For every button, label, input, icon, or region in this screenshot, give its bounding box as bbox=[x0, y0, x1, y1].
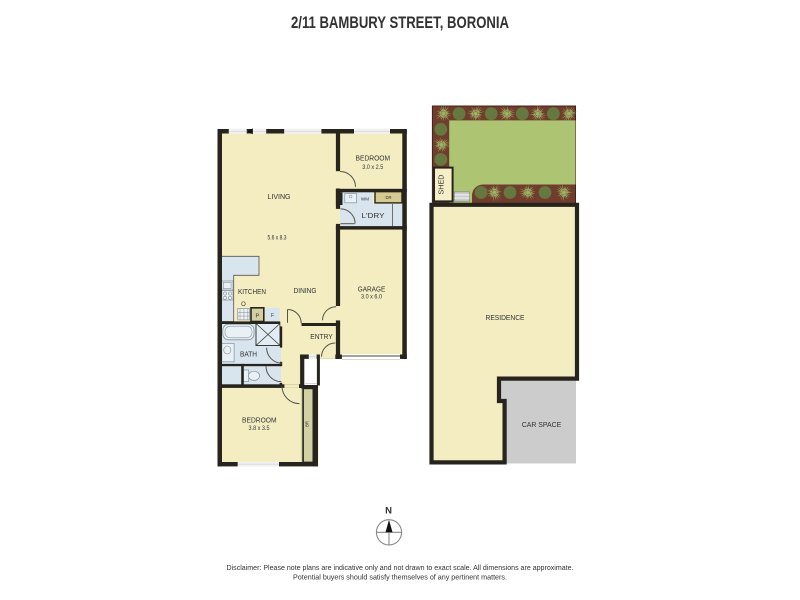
svg-text:O: O bbox=[241, 302, 246, 308]
svg-text:WM: WM bbox=[361, 196, 369, 201]
svg-text:Disclaimer: Please note plans: Disclaimer: Please note plans are indica… bbox=[227, 563, 574, 572]
svg-text:CAR SPACE: CAR SPACE bbox=[522, 420, 562, 429]
svg-text:KITCHEN: KITCHEN bbox=[238, 287, 266, 296]
svg-text:3.0 x 6.0: 3.0 x 6.0 bbox=[361, 293, 382, 300]
svg-text:BEDROOM: BEDROOM bbox=[356, 153, 391, 162]
svg-text:3.0 x 2.5: 3.0 x 2.5 bbox=[362, 164, 383, 171]
svg-text:SHED: SHED bbox=[436, 175, 445, 195]
svg-text:F: F bbox=[271, 313, 274, 319]
svg-text:3.8 x 3.5: 3.8 x 3.5 bbox=[249, 425, 270, 432]
svg-text:N: N bbox=[385, 506, 392, 517]
svg-text:BEDROOM: BEDROOM bbox=[242, 415, 277, 424]
svg-text:BATH: BATH bbox=[240, 350, 257, 359]
svg-text:Potential buyers should satisf: Potential buyers should satisfy themselv… bbox=[293, 573, 507, 582]
svg-text:ENTRY: ENTRY bbox=[310, 332, 333, 341]
svg-text:BR: BR bbox=[304, 421, 309, 427]
svg-text:LIVING: LIVING bbox=[268, 192, 291, 201]
svg-text:2/11 BAMBURY STREET, BORONIA: 2/11 BAMBURY STREET, BORONIA bbox=[291, 14, 509, 32]
svg-text:RESIDENCE: RESIDENCE bbox=[486, 313, 525, 322]
svg-text:GARAGE: GARAGE bbox=[358, 284, 386, 293]
svg-text:DINING: DINING bbox=[294, 286, 317, 295]
svg-text:5.6 x 8.3: 5.6 x 8.3 bbox=[268, 235, 287, 242]
svg-text:P: P bbox=[256, 313, 260, 319]
svg-text:L'DRY: L'DRY bbox=[362, 211, 385, 220]
svg-text:DR: DR bbox=[385, 195, 391, 200]
